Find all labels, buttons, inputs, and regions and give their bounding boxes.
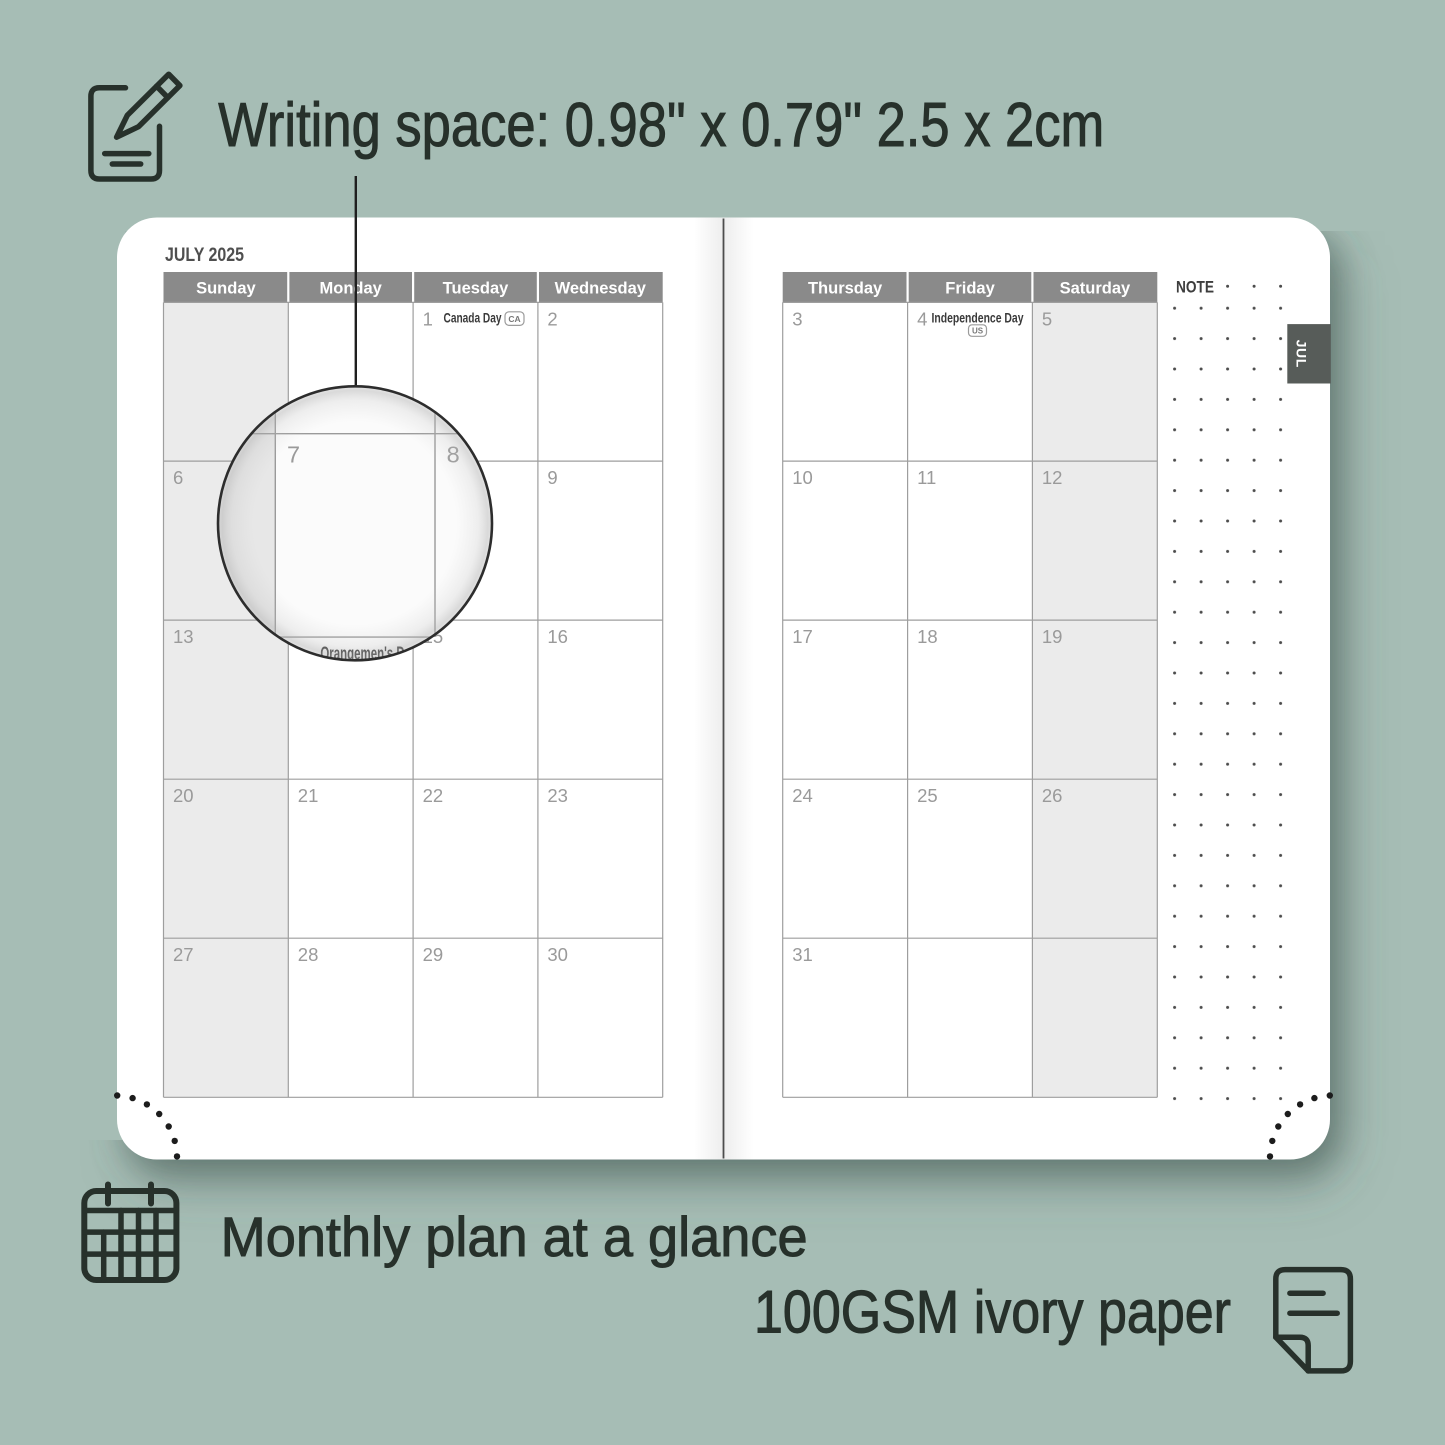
svg-text:18: 18 <box>917 626 938 647</box>
svg-text:29: 29 <box>423 944 444 965</box>
svg-text:JUL: JUL <box>1294 340 1310 368</box>
svg-text:5: 5 <box>1042 308 1052 329</box>
svg-text:31: 31 <box>792 944 813 965</box>
svg-text:CA: CA <box>508 314 520 324</box>
svg-text:28: 28 <box>298 944 319 965</box>
svg-text:Monthly plan at a glance: Monthly plan at a glance <box>221 1205 808 1268</box>
svg-text:16: 16 <box>547 626 568 647</box>
svg-text:9: 9 <box>547 467 557 488</box>
svg-text:17: 17 <box>792 626 813 647</box>
svg-text:2: 2 <box>547 308 557 329</box>
svg-text:Tuesday: Tuesday <box>443 279 510 297</box>
svg-text:NOTE: NOTE <box>1176 279 1214 297</box>
svg-text:Canada Day: Canada Day <box>444 310 502 326</box>
svg-text:Independence Day: Independence Day <box>932 310 1024 326</box>
svg-text:30: 30 <box>547 944 568 965</box>
svg-text:Thursday: Thursday <box>808 279 883 297</box>
svg-text:100GSM ivory paper: 100GSM ivory paper <box>754 1279 1231 1346</box>
svg-text:Saturday: Saturday <box>1060 279 1131 297</box>
svg-text:Monday: Monday <box>320 279 383 297</box>
svg-text:25: 25 <box>917 785 938 806</box>
svg-text:3: 3 <box>792 308 802 329</box>
svg-text:12: 12 <box>1042 467 1063 488</box>
svg-text:10: 10 <box>792 467 813 488</box>
svg-text:27: 27 <box>173 944 194 965</box>
svg-text:23: 23 <box>547 785 568 806</box>
svg-text:Writing space: 0.98" x 0.79" 2: Writing space: 0.98" x 0.79" 2.5 x 2cm <box>218 91 1104 160</box>
svg-text:Friday: Friday <box>945 279 995 297</box>
svg-text:1: 1 <box>423 308 433 329</box>
svg-text:4: 4 <box>917 308 927 329</box>
svg-text:US: US <box>972 327 984 336</box>
svg-text:Sunday: Sunday <box>196 279 256 297</box>
svg-text:24: 24 <box>792 785 813 806</box>
svg-text:22: 22 <box>423 785 444 806</box>
svg-text:21: 21 <box>298 785 319 806</box>
svg-text:19: 19 <box>1042 626 1063 647</box>
svg-text:13: 13 <box>173 626 194 647</box>
svg-text:6: 6 <box>173 467 183 488</box>
svg-text:Wednesday: Wednesday <box>555 279 647 297</box>
svg-text:11: 11 <box>917 467 936 488</box>
svg-text:JULY 2025: JULY 2025 <box>165 245 244 266</box>
svg-text:20: 20 <box>173 785 194 806</box>
svg-text:26: 26 <box>1042 785 1063 806</box>
